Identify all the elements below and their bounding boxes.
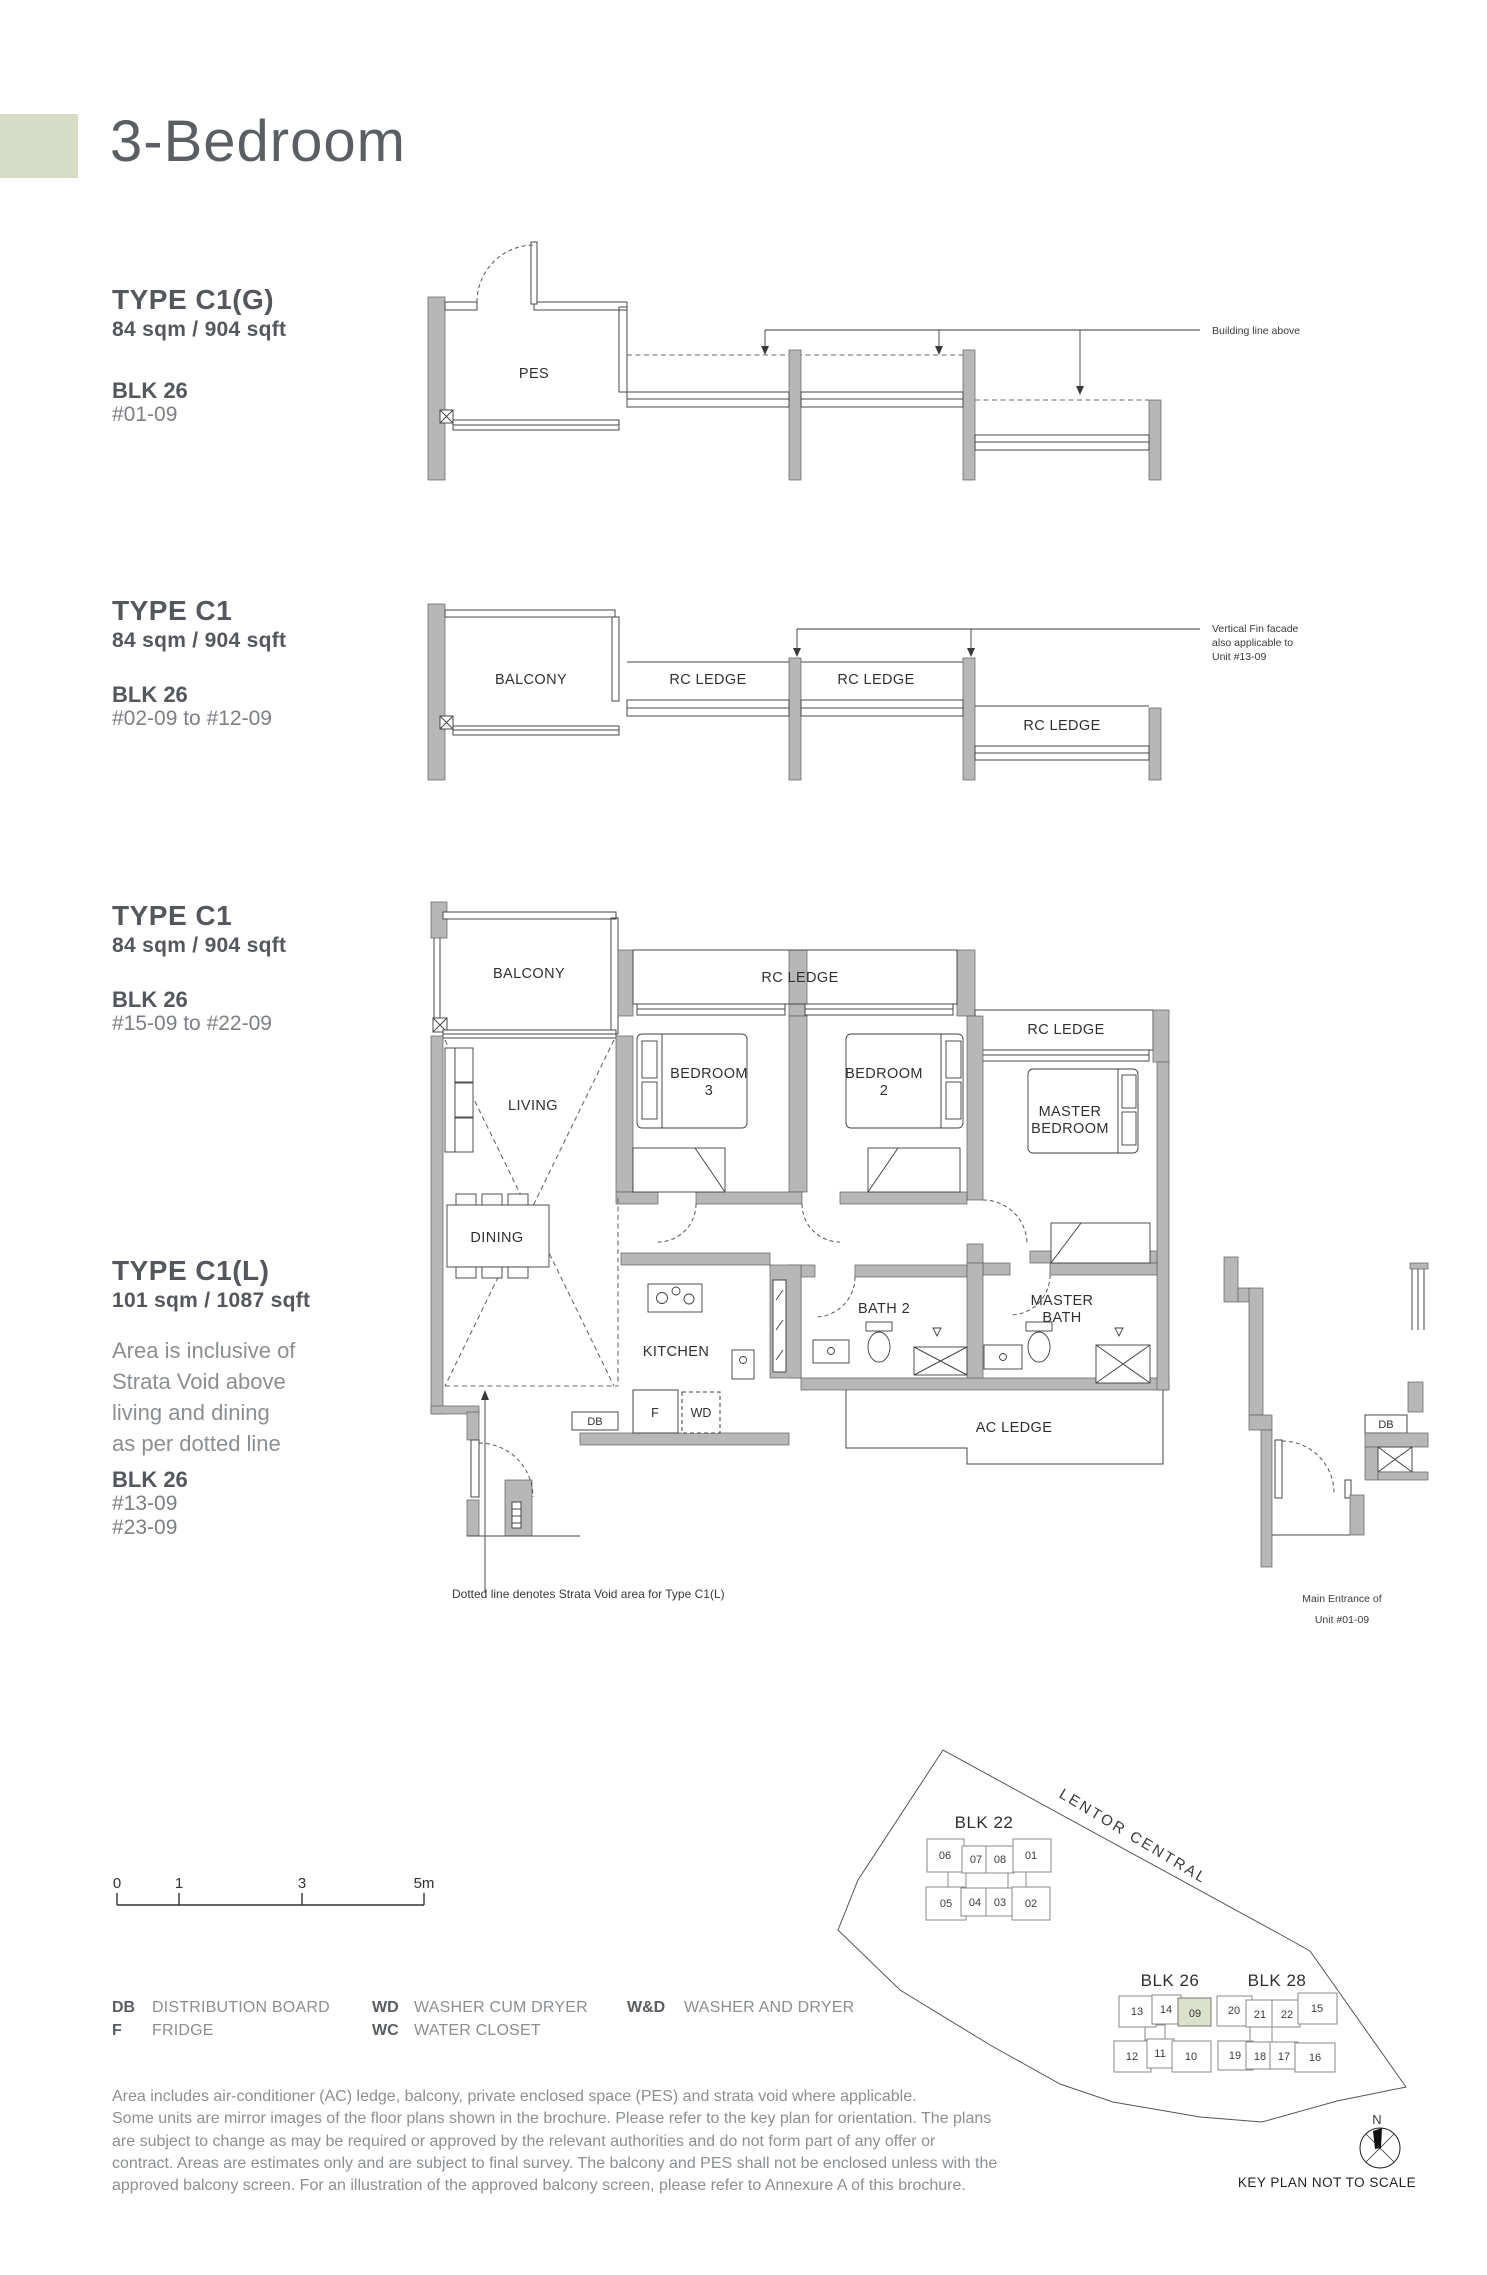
blk26-label: BLK 26 [1141,1971,1200,1990]
note-line: as per dotted line [112,1428,295,1459]
note-line: Strata Void above [112,1366,295,1397]
type-c1l-area: 101 sqm / 1087 sqft [112,1289,310,1313]
main-entrance-note-1: Main Entrance of [1302,1593,1381,1605]
unit-10: 10 [1185,2051,1197,2063]
blk26-buildings: 13 14 09 12 11 10 [1114,1995,1211,2072]
legend-label-db: DISTRIBUTION BOARD [152,1999,330,2017]
bath2-label: BATH 2 [858,1301,910,1317]
db-label: DB [587,1416,602,1428]
scale-tick-0: 0 [113,1875,121,1892]
fridge-label: F [651,1406,659,1420]
bath2-fixtures [813,1322,967,1375]
type-c1a-units: #02-09 to #12-09 [112,707,272,731]
type-c1g-blk: BLK 26 [112,378,188,404]
unit-03: 03 [994,1897,1006,1909]
balcony-label: BALCONY [495,672,567,688]
fin-note-line3: Unit #13-09 [1212,651,1266,663]
legend-abbr-wc: WC [372,2022,399,2040]
balcony-label: BALCONY [493,966,565,982]
type-c1a-name: TYPE C1 [112,595,232,627]
rc-ledge-right: RC LEDGE [975,1010,1169,1062]
legend-label-wc: WATER CLOSET [414,2022,541,2040]
ac-ledge: AC LEDGE [846,1390,1163,1464]
north-compass-icon: N [1360,2112,1400,2168]
bedroom3-number: 3 [705,1083,713,1099]
unit-05: 05 [940,1898,952,1910]
unit-07: 07 [970,1854,982,1866]
unit-22: 22 [1281,2009,1293,2021]
pes-room-label: PES [519,366,549,382]
wardrobe [868,1148,960,1192]
master-bath-label-1: MASTER [1031,1293,1094,1309]
unit-18: 18 [1254,2051,1266,2063]
type-c1g-units: #01-09 [112,403,177,427]
scale-tick-3: 3 [298,1875,306,1892]
main-entrance-note-2: Unit #01-09 [1315,1614,1369,1626]
unit-12: 12 [1126,2051,1138,2063]
main-floor-plan: BALCONY RC LEDGE RC LEDGE [425,890,1185,1610]
fin-note-line1: Vertical Fin facade [1212,623,1299,635]
rc-ledge-label-1: RC LEDGE [669,672,746,688]
ac-ledge-label: AC LEDGE [976,1420,1053,1436]
bedroom3-label: BEDROOM [670,1066,748,1082]
strata-void-note: Dotted line denotes Strata Void area for… [452,1587,725,1601]
type-c1g-name: TYPE C1(G) [112,284,274,316]
type-c1l-units2: #23-09 [112,1516,177,1540]
type-c1a-area: 84 sqm / 904 sqft [112,629,286,653]
dining-label: DINING [470,1230,523,1246]
unit-17: 17 [1278,2051,1290,2063]
section-diagram-c1-low: BALCONY RC LEDGE RC LEDGE RC LEDGE Verti… [425,585,1215,780]
building-line-note: Building line above [1212,325,1300,337]
scale-tick-5m: 5m [414,1875,435,1892]
section-diagram-c1g: PES Building line above [425,235,1215,480]
unit-20: 20 [1228,2005,1240,2017]
unit-09: 09 [1189,2008,1201,2020]
keyplan-caption: KEY PLAN NOT TO SCALE [1238,2175,1416,2190]
legend-abbr-wd: WD [372,1999,399,2017]
master-bedroom-label-2: BEDROOM [1031,1121,1109,1137]
rc-ledge-top: RC LEDGE [618,950,975,1016]
adjacent-unit-plan: DB Main Entrance of Unit #01-09 [1220,1250,1487,1630]
legend-abbr-db: DB [112,1999,135,2017]
type-c1b-blk: BLK 26 [112,987,188,1013]
unit-06: 06 [939,1850,951,1862]
unit-13: 13 [1131,2006,1143,2018]
db-label: DB [1378,1419,1393,1431]
kitchen-sink [732,1350,754,1379]
sliding-door [773,1280,786,1372]
door-leaf [1275,1440,1282,1498]
rc-ledge-label: RC LEDGE [761,970,838,986]
type-c1l-note: Area is inclusive of Strata Void above l… [112,1335,295,1459]
unit-14: 14 [1160,2004,1172,2016]
fin-note-line2: also applicable to [1212,637,1293,649]
north-label: N [1372,2112,1381,2127]
bedroom2-label: BEDROOM [845,1066,923,1082]
blk28-buildings: 20 21 22 15 19 18 17 16 [1217,1993,1337,2072]
unit-16: 16 [1309,2052,1321,2064]
legend-abbr-wandd: W&D [627,1999,665,2017]
entrance-door-leaf [471,1440,479,1497]
rc-ledge-label-2: RC LEDGE [837,672,914,688]
master-bath-label-2: BATH [1042,1310,1081,1326]
type-c1g-area: 84 sqm / 904 sqft [112,318,286,342]
type-c1l-blk: BLK 26 [112,1467,188,1493]
unit-15: 15 [1311,2003,1323,2015]
legend-label-f: FRIDGE [152,2022,214,2040]
legend-abbr-f: F [112,2022,122,2040]
master-bedroom-label-1: MASTER [1039,1104,1102,1120]
sofa [445,1048,455,1152]
note-line: Area is inclusive of [112,1335,295,1366]
rc-ledge-label: RC LEDGE [1027,1022,1104,1038]
type-c1l-units1: #13-09 [112,1492,177,1516]
type-c1b-name: TYPE C1 [112,900,232,932]
unit-04: 04 [969,1897,981,1909]
unit-19: 19 [1229,2050,1241,2062]
scale-tick-1: 1 [175,1875,183,1892]
bedroom2-number: 2 [880,1083,888,1099]
door-leaf [531,242,537,304]
kitchen-label: KITCHEN [643,1344,709,1360]
unit-08: 08 [994,1854,1006,1866]
road-label: LENTOR CENTRAL [1056,1786,1210,1888]
blk22-buildings: 06 07 08 01 05 04 03 02 [926,1839,1051,1920]
wd-label: WD [691,1406,712,1420]
brochure-page: 3-Bedroom TYPE C1(G) 84 sqm / 904 sqft B… [0,0,1487,2275]
note-line: living and dining [112,1397,295,1428]
type-c1b-units: #15-09 to #22-09 [112,1012,272,1036]
accent-square [0,114,78,178]
scale-bar: 0 1 3 5m [95,1855,465,1915]
blk22-label: BLK 22 [955,1813,1014,1832]
door-swing-arc [477,245,534,302]
unit-11: 11 [1154,2048,1165,2060]
unit-02: 02 [1025,1898,1037,1910]
type-c1l-name: TYPE C1(L) [112,1255,269,1287]
type-c1a-blk: BLK 26 [112,682,188,708]
key-plan: LENTOR CENTRAL BLK 22 06 07 08 01 05 04 … [790,1680,1487,2210]
master-bath-fixtures [984,1322,1150,1383]
wc [866,1322,892,1331]
unit-21: 21 [1254,2009,1266,2021]
type-c1b-area: 84 sqm / 904 sqft [112,934,286,958]
living-label: LIVING [508,1098,558,1114]
kitchen-fixtures [648,1284,754,1379]
page-title: 3-Bedroom [110,108,406,175]
legend-label-wd: WASHER CUM DRYER [414,1999,588,2017]
blk28-label: BLK 28 [1248,1971,1307,1990]
rc-ledge-label-3: RC LEDGE [1023,718,1100,734]
balcony: BALCONY [431,902,618,1038]
unit-01: 01 [1025,1850,1037,1862]
wardrobe [633,1148,725,1192]
